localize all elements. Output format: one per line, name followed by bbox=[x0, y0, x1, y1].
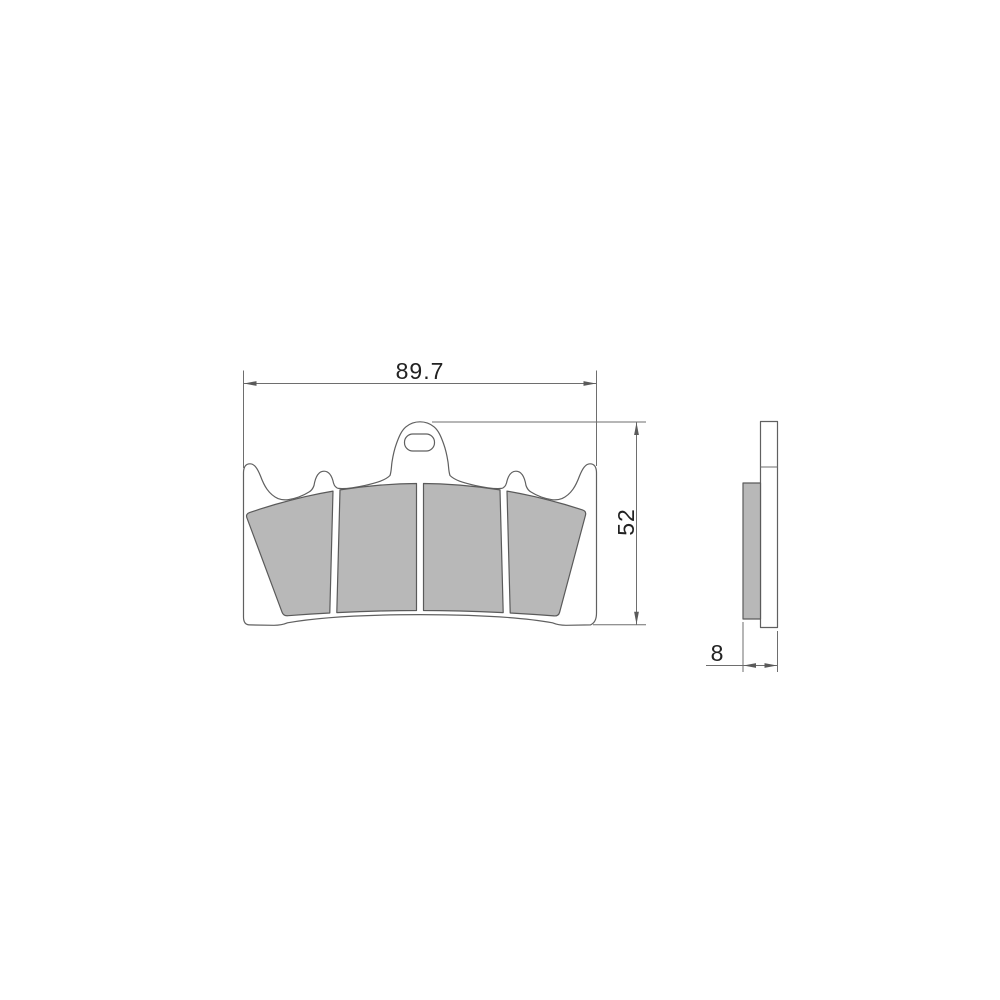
drawing-svg: 89.7 52 8 bbox=[0, 0, 1000, 1000]
height-dimension-label: 52 bbox=[613, 508, 639, 536]
side-view bbox=[743, 422, 778, 628]
height-arrow-bottom bbox=[634, 612, 639, 625]
front-view bbox=[244, 422, 597, 626]
side-backing-plate bbox=[761, 422, 778, 628]
friction-segment-3 bbox=[424, 484, 504, 613]
thickness-arrow-right bbox=[765, 663, 778, 668]
mounting-hole bbox=[405, 434, 435, 451]
friction-segment-2 bbox=[337, 484, 417, 613]
brake-pad-technical-drawing: 89.7 52 8 bbox=[0, 0, 1000, 1000]
friction-material bbox=[247, 484, 586, 616]
thickness-arrow-left bbox=[744, 663, 757, 668]
height-arrow-top bbox=[634, 423, 639, 436]
width-dimension-label: 89.7 bbox=[396, 358, 445, 384]
width-arrow-left bbox=[244, 381, 257, 386]
width-arrow-right bbox=[584, 381, 597, 386]
thickness-dimension-label: 8 bbox=[711, 640, 725, 666]
side-friction-material bbox=[743, 483, 761, 619]
dimension-thickness: 8 bbox=[706, 622, 778, 672]
